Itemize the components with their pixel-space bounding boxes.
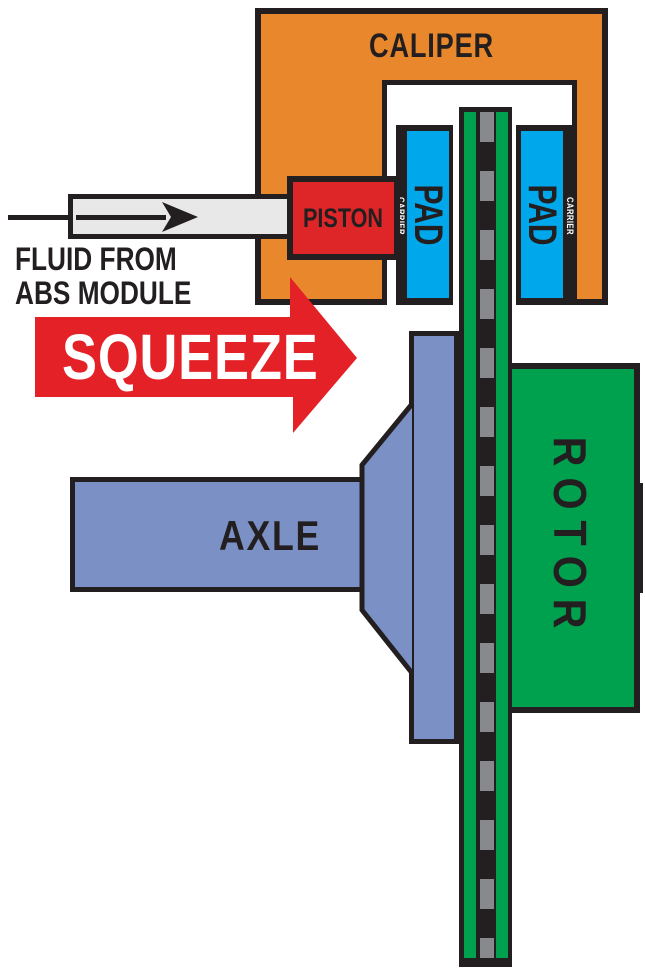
axle-label: AXLE [185,512,355,560]
caliper-label: CALIPER [290,27,572,66]
disc-face-left [464,112,476,958]
flow-arrowhead-icon [158,200,200,236]
rotor-disc-strip [459,107,512,967]
disc-face-right [496,112,508,958]
flow-arrow-icon [76,215,166,220]
fluid-supply-line [8,215,70,220]
pad-left-label: PAD [408,178,448,253]
disc-brake-diagram: CALIPER AXLE ROTOR PAD PAD CARRIER CARRI… [0,0,645,975]
piston-block: PISTON [287,176,400,260]
piston-label: PISTON [303,203,383,234]
rotor-label: ROTOR [545,430,595,646]
squeeze-label: SQUEEZE [62,326,319,388]
pad-right-label: PAD [522,178,562,253]
hub-flare [355,398,417,680]
disc-centerline [480,112,494,958]
carrier-right-label: CARRIER [564,190,576,243]
